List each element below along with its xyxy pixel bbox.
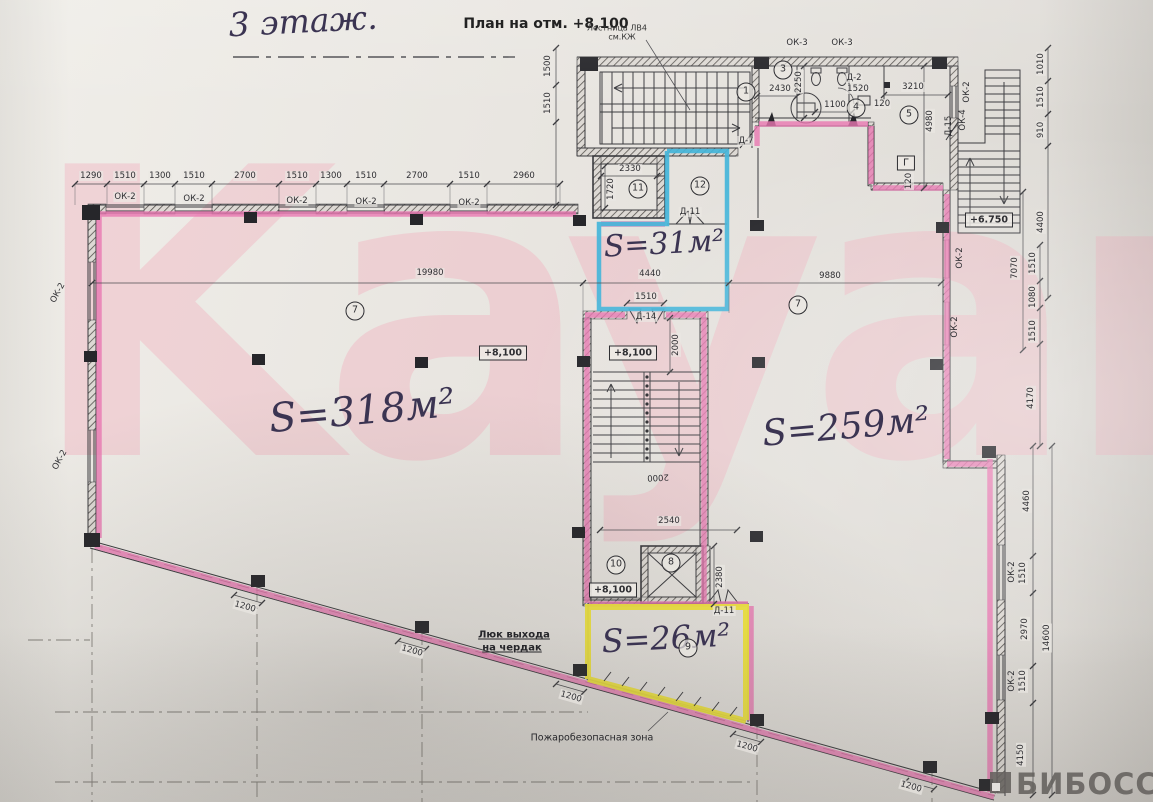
dim-top-7: 1300 <box>319 171 343 181</box>
watermark-portal: БИБОСС <box>1016 767 1153 801</box>
window-label-ok3: ОК-3 <box>785 38 808 48</box>
plan-drawing <box>0 0 1153 802</box>
room-number-8: 8 <box>662 554 681 573</box>
dim-right-4460: 4460 <box>1022 489 1032 513</box>
dim-top-3: 1300 <box>148 171 172 181</box>
floor-title: 3 этаж. <box>228 0 379 44</box>
dim-top-4: 1510 <box>182 171 206 181</box>
door-label-d11: Д-11 <box>679 207 702 217</box>
room-number-3: 3 <box>774 61 793 80</box>
dim-top-2: 1510 <box>113 171 137 181</box>
dim-right-14600: 14600 <box>1042 623 1052 652</box>
dim-shaft-2380: 2380 <box>715 565 725 589</box>
dim-top-8: 1510 <box>354 171 378 181</box>
dim-right-1510c: 1510 <box>1028 319 1038 343</box>
dim-gas-120: 120 <box>904 172 914 190</box>
elevation-mark-stair: +8,100 <box>609 346 657 361</box>
elevation-mark-left: +8,100 <box>479 346 527 361</box>
room-number-7-right: 7 <box>789 296 808 315</box>
dim-right-1080: 1080 <box>1028 285 1038 309</box>
elevation-mark-bottom: +8,100 <box>589 583 637 598</box>
dim-wc-1520: 1520 <box>846 84 870 94</box>
dim-wc-3210: 3210 <box>901 82 925 92</box>
window-label-ok2: ОК-2 <box>285 196 308 206</box>
dim-wc-2250: 2250 <box>794 70 804 94</box>
window-label-ok2: ОК-2 <box>1007 561 1017 582</box>
dim-top-9: 2700 <box>405 171 429 181</box>
window-label-ok2: ОК-2 <box>950 316 960 337</box>
dim-wc-120: 120 <box>873 99 891 109</box>
door-label-d14: Д-14 <box>635 312 658 322</box>
stairs-top <box>600 72 750 144</box>
room-number-7-left: 7 <box>346 302 365 321</box>
dim-top-1: 1290 <box>79 171 103 181</box>
area-note-blue-room: S=31м² <box>603 223 725 264</box>
dim-right-1010: 1010 <box>1036 52 1046 76</box>
door-label-d2: Д-2 <box>845 73 862 83</box>
window-label-ok2: ОК-2 <box>182 194 205 204</box>
dim-span-9880: 9880 <box>818 271 842 281</box>
window-label-ok2: ОК-2 <box>113 192 136 202</box>
attic-hatch-note-1: Люк выхода <box>478 630 550 641</box>
dim-wc-4980: 4980 <box>925 109 935 133</box>
floorplan-photo: Kayan <box>0 0 1153 802</box>
window-label-ok4: ОК-4 <box>958 109 968 130</box>
dim-right-4150: 4150 <box>1016 743 1026 767</box>
dim-top-6: 1510 <box>285 171 309 181</box>
window-label-ok2: ОК-2 <box>354 197 377 207</box>
dim-left-2: 1510 <box>543 91 553 115</box>
stairs-central <box>593 372 700 462</box>
window-label-ok2: ОК-2 <box>962 81 972 102</box>
fire-zone-note: Пожаробезопасная зона <box>531 733 654 744</box>
dim-top-5: 2700 <box>233 171 257 181</box>
room-number-11: 11 <box>629 180 648 199</box>
dim-right-1510d: 1510 <box>1018 561 1028 585</box>
area-note-yellow-room: S=26м² <box>601 616 732 661</box>
dim-span-19980: 19980 <box>415 268 444 278</box>
dim-left-1: 1500 <box>543 54 553 78</box>
dim-right-910: 910 <box>1036 121 1046 139</box>
room-number-10: 10 <box>607 556 626 575</box>
dim-stair-2000: 2000 <box>671 333 681 357</box>
gas-riser-mark: Г <box>897 156 915 171</box>
window-label-ok3: ОК-3 <box>830 38 853 48</box>
dim-wc-1100: 1100 <box>823 100 847 110</box>
door-label-d7: Д-7 <box>737 136 754 146</box>
dim-span-4440: 4440 <box>638 269 662 279</box>
room-number-9: 9 <box>679 639 698 658</box>
dim-right-2970: 2970 <box>1020 617 1030 641</box>
room-number-5: 5 <box>900 106 919 125</box>
dim-right-1510a: 1510 <box>1036 85 1046 109</box>
door-symbols <box>629 127 757 603</box>
dim-right-4400: 4400 <box>1036 210 1046 234</box>
room-number-4: 4 <box>847 99 866 118</box>
dim-right-4170: 4170 <box>1026 386 1036 410</box>
window-label-ok2: ОК-2 <box>955 247 965 268</box>
dim-right-1510b: 1510 <box>1028 251 1038 275</box>
room-number-1: 1 <box>737 83 756 102</box>
door-label-d15: Д-15 <box>944 116 954 137</box>
dim-top-10: 1510 <box>457 171 481 181</box>
dim-wc-2430: 2430 <box>768 84 792 94</box>
portal-logo-icon <box>990 772 1011 793</box>
dim-lift-2330: 2330 <box>618 164 642 174</box>
attic-hatch-note-2: на чердак <box>482 643 542 654</box>
dim-lift-1720: 1720 <box>606 177 616 201</box>
window-label-ok2: ОК-2 <box>1007 670 1017 691</box>
stair-reference-2: см.КЖ <box>608 33 635 42</box>
elevation-mark-landing: +6.750 <box>965 213 1013 228</box>
dim-door-1510: 1510 <box>634 292 658 302</box>
door-label-d11: Д-11 <box>713 606 736 616</box>
highlight-pink <box>95 124 994 797</box>
room-number-12: 12 <box>691 177 710 196</box>
window-label-ok2: ОК-2 <box>457 198 480 208</box>
dim-right-7070: 7070 <box>1010 256 1020 280</box>
stair-reference: Лестница ЛВ4 <box>587 24 647 33</box>
dim-stair-2540: 2540 <box>657 516 681 526</box>
dim-stair-mark: 2000 <box>647 471 669 482</box>
dim-right-1510e: 1510 <box>1018 669 1028 693</box>
dim-top-11: 2960 <box>512 171 536 181</box>
